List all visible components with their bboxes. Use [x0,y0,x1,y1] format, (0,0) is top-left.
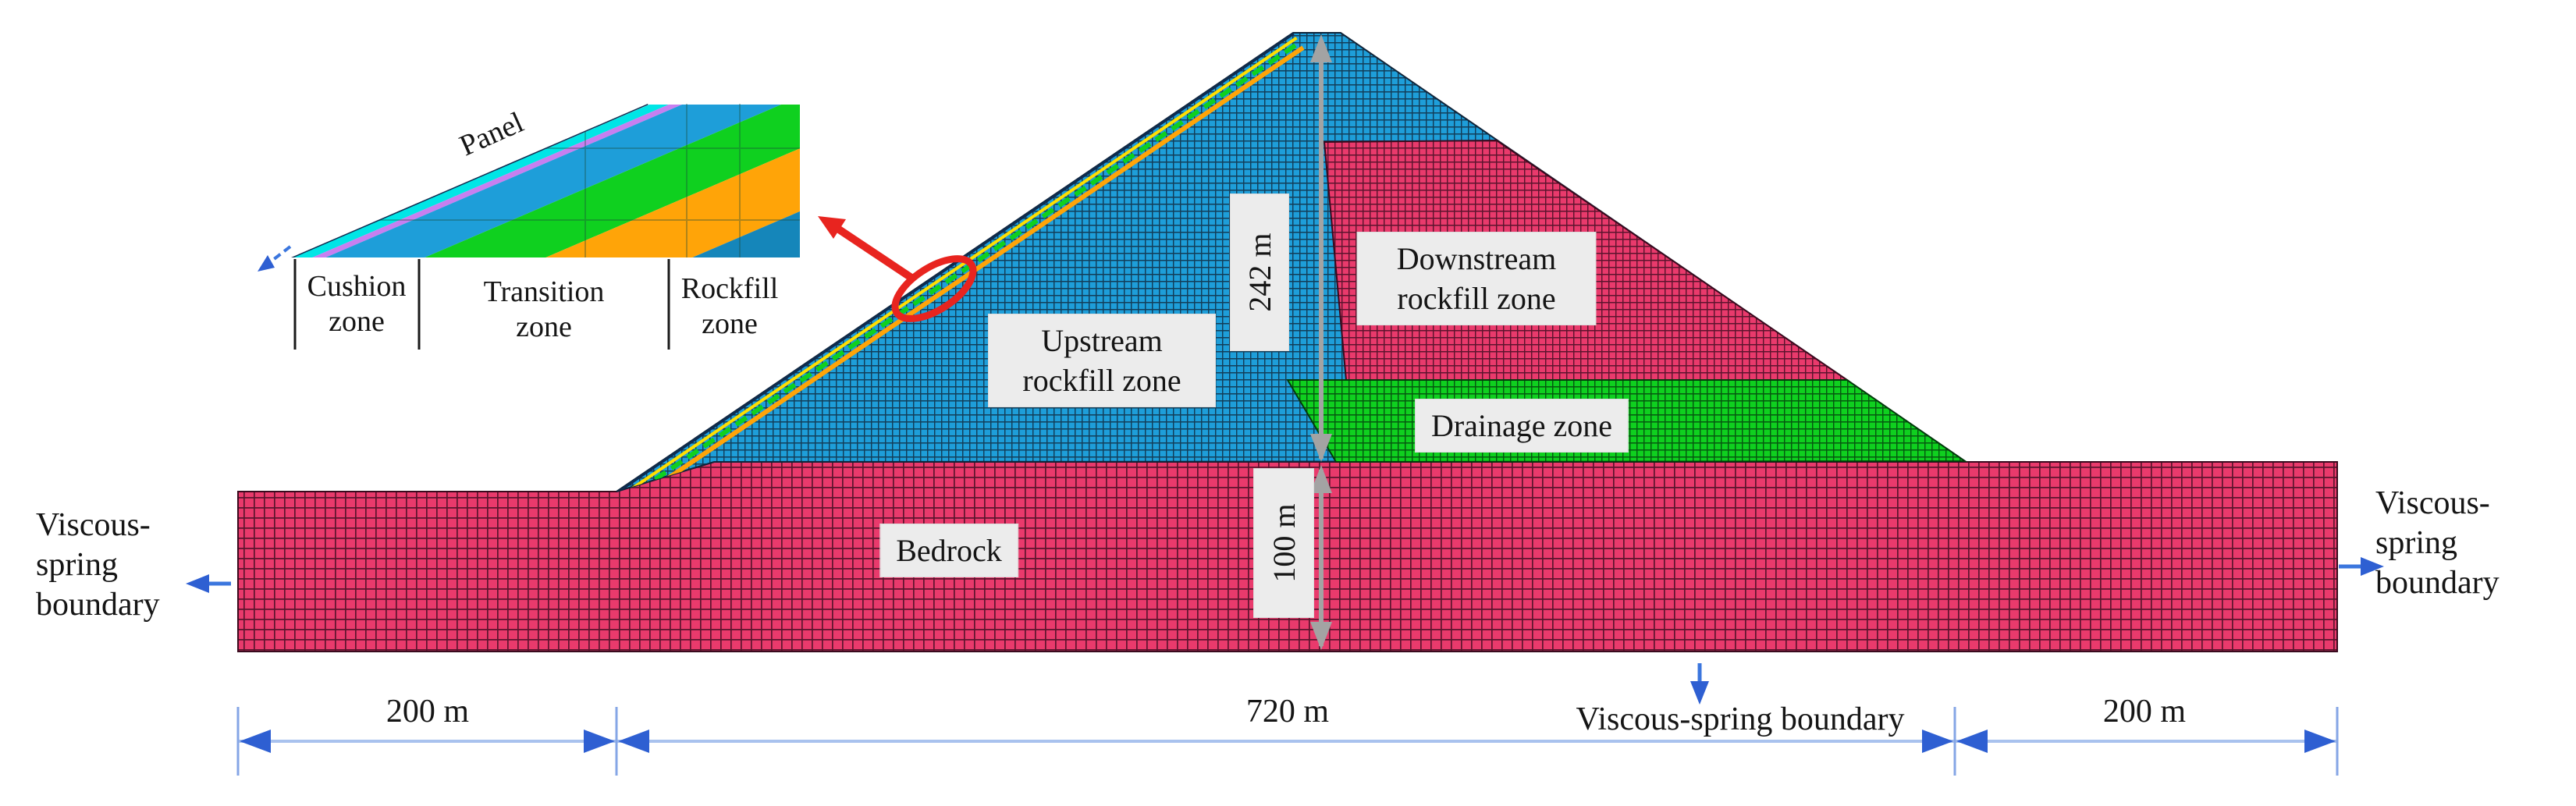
left-boundary-label: Viscous- spring boundary [36,506,160,626]
center-width-dimension: 720 m [1246,693,1329,730]
left-width-dimension: 200 m [386,693,469,730]
inset-slope-axis-arrow [258,247,290,272]
transition-zone-label: Transition zone [468,275,620,345]
bottom-boundary-arrow [1690,663,1709,705]
dam-height-dimension: 242 m [1231,194,1288,350]
right-width-dimension: 200 m [2103,693,2186,730]
rockfill-zone-label: Rockfill zone [667,272,792,342]
bedrock-label: Bedrock [880,524,1018,577]
dam-cross-section-drawing [0,0,2576,806]
dam-model-figure: Panel Cushion zone Transition zone Rockf… [0,0,2576,806]
upstream-rockfill-label: Upstream rockfill zone [989,314,1215,407]
face-detail-inset [291,104,1049,258]
downstream-rockfill-label: Downstream rockfill zone [1358,233,1596,325]
inset-pointer-arrow [818,216,911,278]
left-boundary-arrow [186,574,231,593]
drainage-zone-label: Drainage zone [1416,399,1628,452]
right-boundary-label: Viscous- spring boundary [2375,484,2500,604]
foundation-depth-dimension: 100 m [1254,469,1313,617]
cushion-zone-label: Cushion zone [294,269,419,339]
bottom-boundary-label: Viscous-spring boundary [1576,701,1905,738]
